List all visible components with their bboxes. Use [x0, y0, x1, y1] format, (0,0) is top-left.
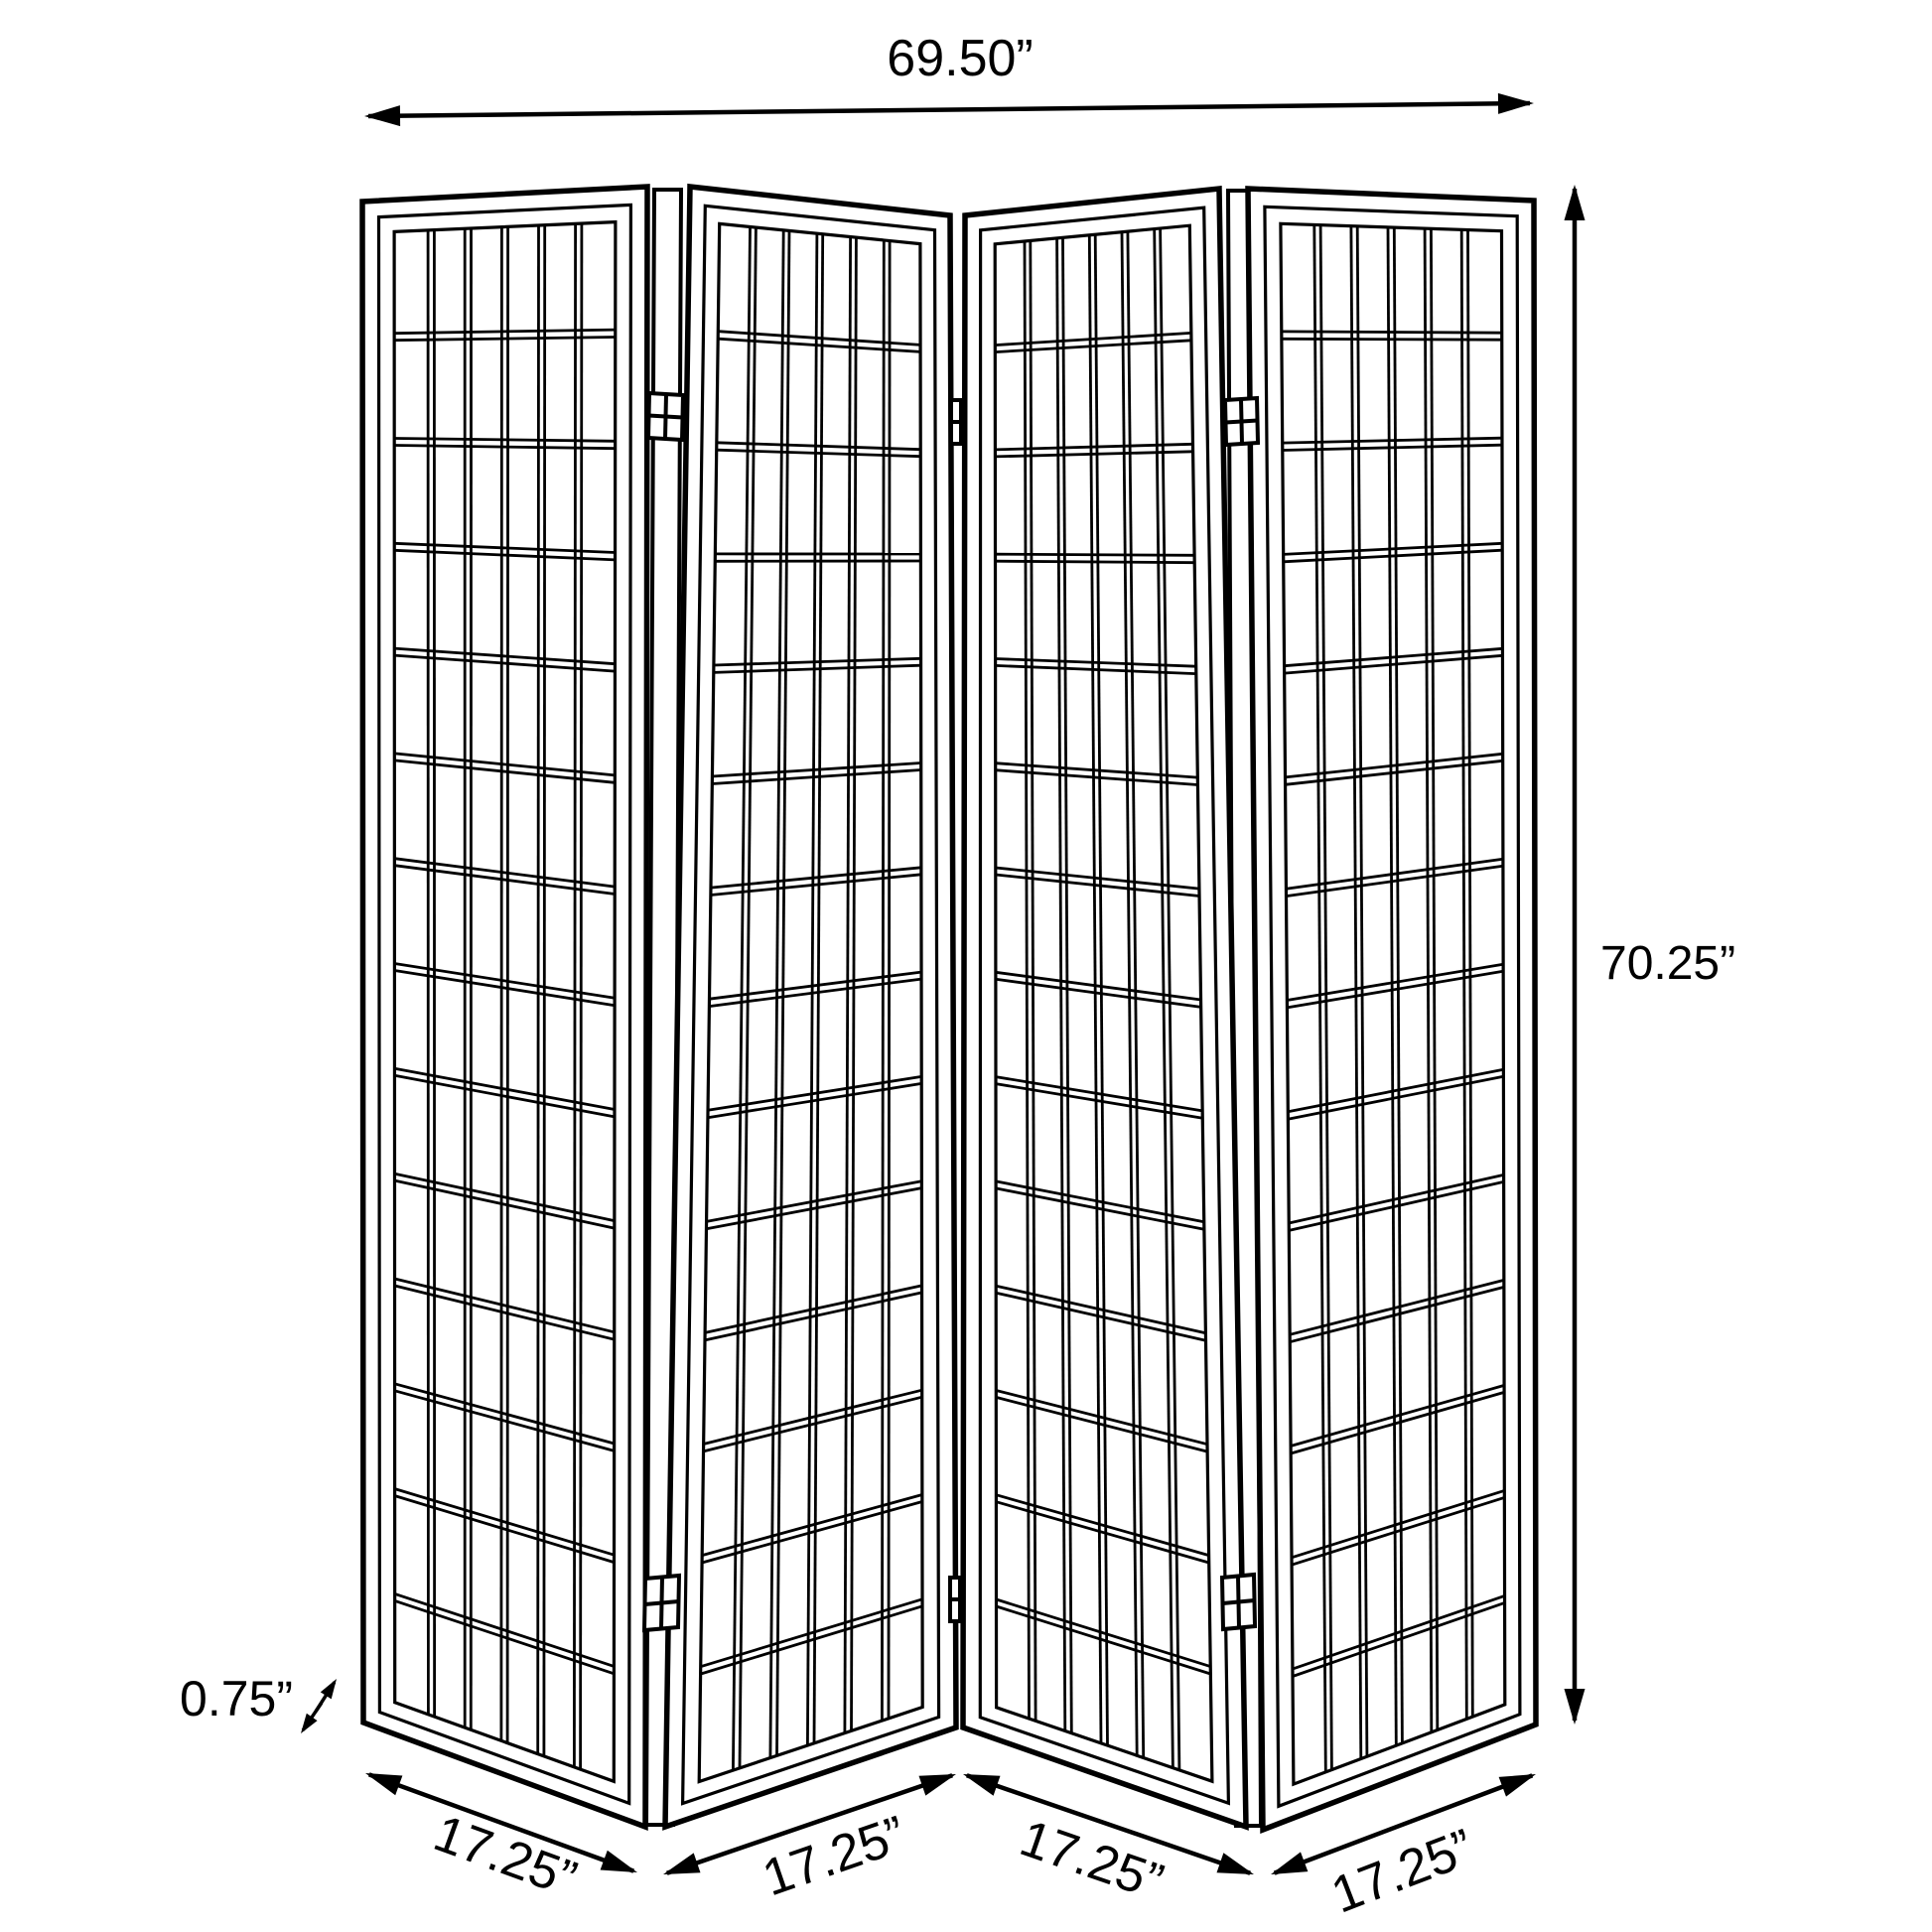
screen-panel-4	[1248, 189, 1536, 1830]
panel-width-label-1: 17.25”	[427, 1805, 584, 1909]
dimension-diagram-page: 69.50” 70.25” 0.75” 17.25” 17.25” 17.25”…	[0, 0, 1932, 1932]
hinge-bottom-3-4	[1222, 1575, 1255, 1629]
screen-panel-1	[362, 187, 647, 1827]
hinge-top-1-2	[648, 393, 683, 440]
screen-panel-2	[665, 187, 956, 1827]
panel-width-label-3: 17.25”	[1013, 1810, 1170, 1912]
height-dimension-label: 70.25”	[1600, 937, 1735, 990]
panel-width-label-4: 17.25”	[1324, 1819, 1481, 1925]
folding-screen-illustration	[362, 187, 1536, 1830]
hinge-bottom-2-3	[950, 1578, 960, 1621]
overall-height-arrow	[1565, 185, 1586, 1725]
overall-width-arrow	[364, 93, 1534, 126]
screen-panel-3	[963, 189, 1246, 1827]
hinge-bottom-1-2	[644, 1576, 679, 1630]
panel-width-label-2: 17.25”	[756, 1806, 912, 1908]
folding-screen-dimension-diagram: 69.50” 70.25” 0.75” 17.25” 17.25” 17.25”…	[0, 0, 1932, 1932]
thickness-arrow-lower	[301, 1703, 322, 1733]
hinge-top-3-4	[1225, 398, 1258, 445]
thickness-dimension-label: 0.75”	[180, 1671, 293, 1726]
hinge-top-2-3	[951, 400, 961, 444]
width-dimension-label: 69.50”	[887, 30, 1033, 87]
